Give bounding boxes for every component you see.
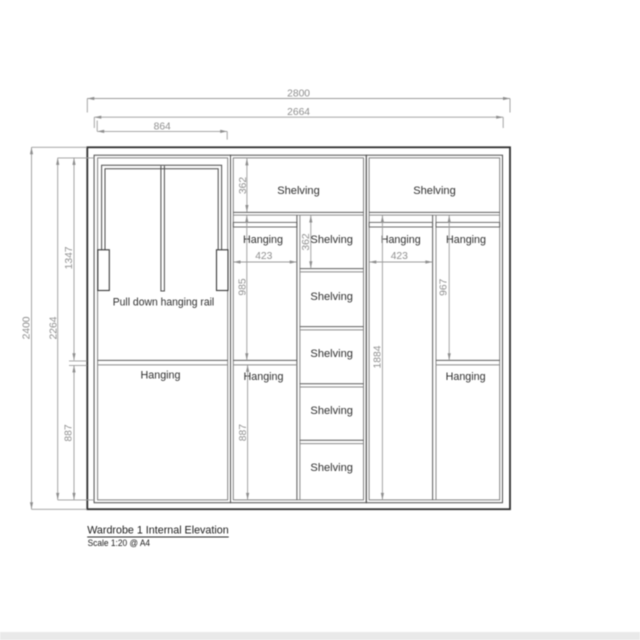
svg-text:Shelving: Shelving	[310, 234, 353, 246]
svg-text:Scale 1:20 @ A4: Scale 1:20 @ A4	[88, 538, 151, 548]
svg-text:Hanging: Hanging	[446, 234, 486, 246]
svg-text:2800: 2800	[287, 88, 310, 99]
svg-text:Shelving: Shelving	[310, 348, 353, 360]
svg-text:985: 985	[237, 278, 248, 295]
svg-text:362: 362	[301, 233, 312, 250]
svg-text:1347: 1347	[64, 246, 75, 269]
svg-text:Wardrobe 1 Internal Elevation: Wardrobe 1 Internal Elevation	[87, 525, 229, 537]
svg-text:423: 423	[255, 251, 272, 262]
svg-text:Shelving: Shelving	[413, 185, 456, 197]
svg-text:2264: 2264	[49, 316, 60, 339]
svg-text:Hanging: Hanging	[141, 370, 181, 382]
svg-text:2664: 2664	[287, 107, 310, 118]
svg-text:Pull down hanging rail: Pull down hanging rail	[113, 296, 215, 308]
svg-text:362: 362	[238, 177, 249, 194]
svg-text:Shelving: Shelving	[310, 405, 353, 417]
svg-text:887: 887	[64, 424, 75, 441]
svg-text:Shelving: Shelving	[310, 462, 353, 474]
svg-text:Hanging: Hanging	[446, 371, 486, 383]
svg-text:887: 887	[238, 424, 249, 441]
svg-text:Shelving: Shelving	[277, 185, 320, 197]
svg-text:864: 864	[154, 121, 171, 132]
svg-text:423: 423	[391, 251, 408, 262]
svg-text:Hanging: Hanging	[243, 234, 283, 246]
svg-text:1884: 1884	[372, 345, 383, 368]
svg-text:Hanging: Hanging	[381, 234, 421, 246]
svg-text:Shelving: Shelving	[310, 291, 353, 303]
svg-text:2400: 2400	[22, 316, 33, 339]
svg-text:Hanging: Hanging	[244, 371, 284, 383]
svg-text:967: 967	[439, 278, 450, 295]
